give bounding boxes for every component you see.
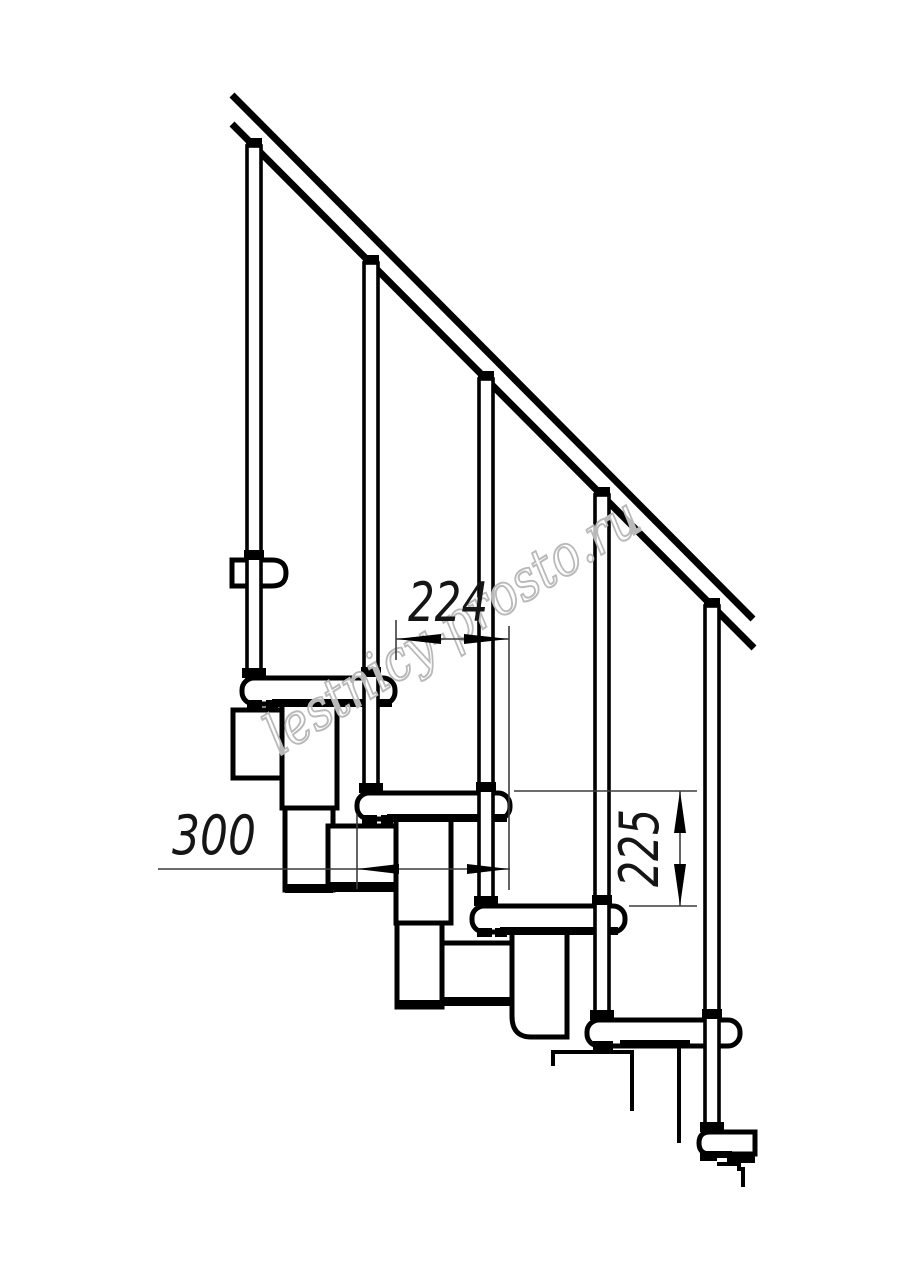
module-box xyxy=(512,932,567,1037)
tread-underside xyxy=(620,1040,690,1047)
baluster-collar xyxy=(476,782,496,792)
module-outline-partial xyxy=(717,1164,743,1187)
tread-5-assembly xyxy=(699,1132,755,1187)
baluster-post xyxy=(705,606,719,1135)
baluster-collar xyxy=(592,895,612,905)
module-box xyxy=(397,923,442,1007)
staircase-side-view-drawing: lestnicy-prosto.ru 224 300 225 xyxy=(0,0,914,1280)
dimension-label-rise: 225 xyxy=(608,809,671,887)
baluster-post xyxy=(247,146,261,681)
baluster-collar xyxy=(702,1009,722,1019)
baluster-1 xyxy=(242,138,266,681)
module-outline-partial xyxy=(553,1052,632,1111)
module-box xyxy=(328,826,403,888)
baluster-collar xyxy=(244,550,264,560)
baluster-5 xyxy=(700,598,724,1135)
dimension-label-going: 224 xyxy=(408,571,488,634)
module-box xyxy=(396,819,451,923)
module-box xyxy=(442,943,517,1003)
dimension-arrow-down xyxy=(674,864,686,906)
dimension-label-tread-depth: 300 xyxy=(172,804,256,867)
tread xyxy=(699,1132,755,1154)
staircase-drawing-page: lestnicy-prosto.ru 224 300 225 xyxy=(0,0,914,1280)
dimension-arrow-up xyxy=(674,791,686,833)
baluster-post xyxy=(595,495,609,1023)
